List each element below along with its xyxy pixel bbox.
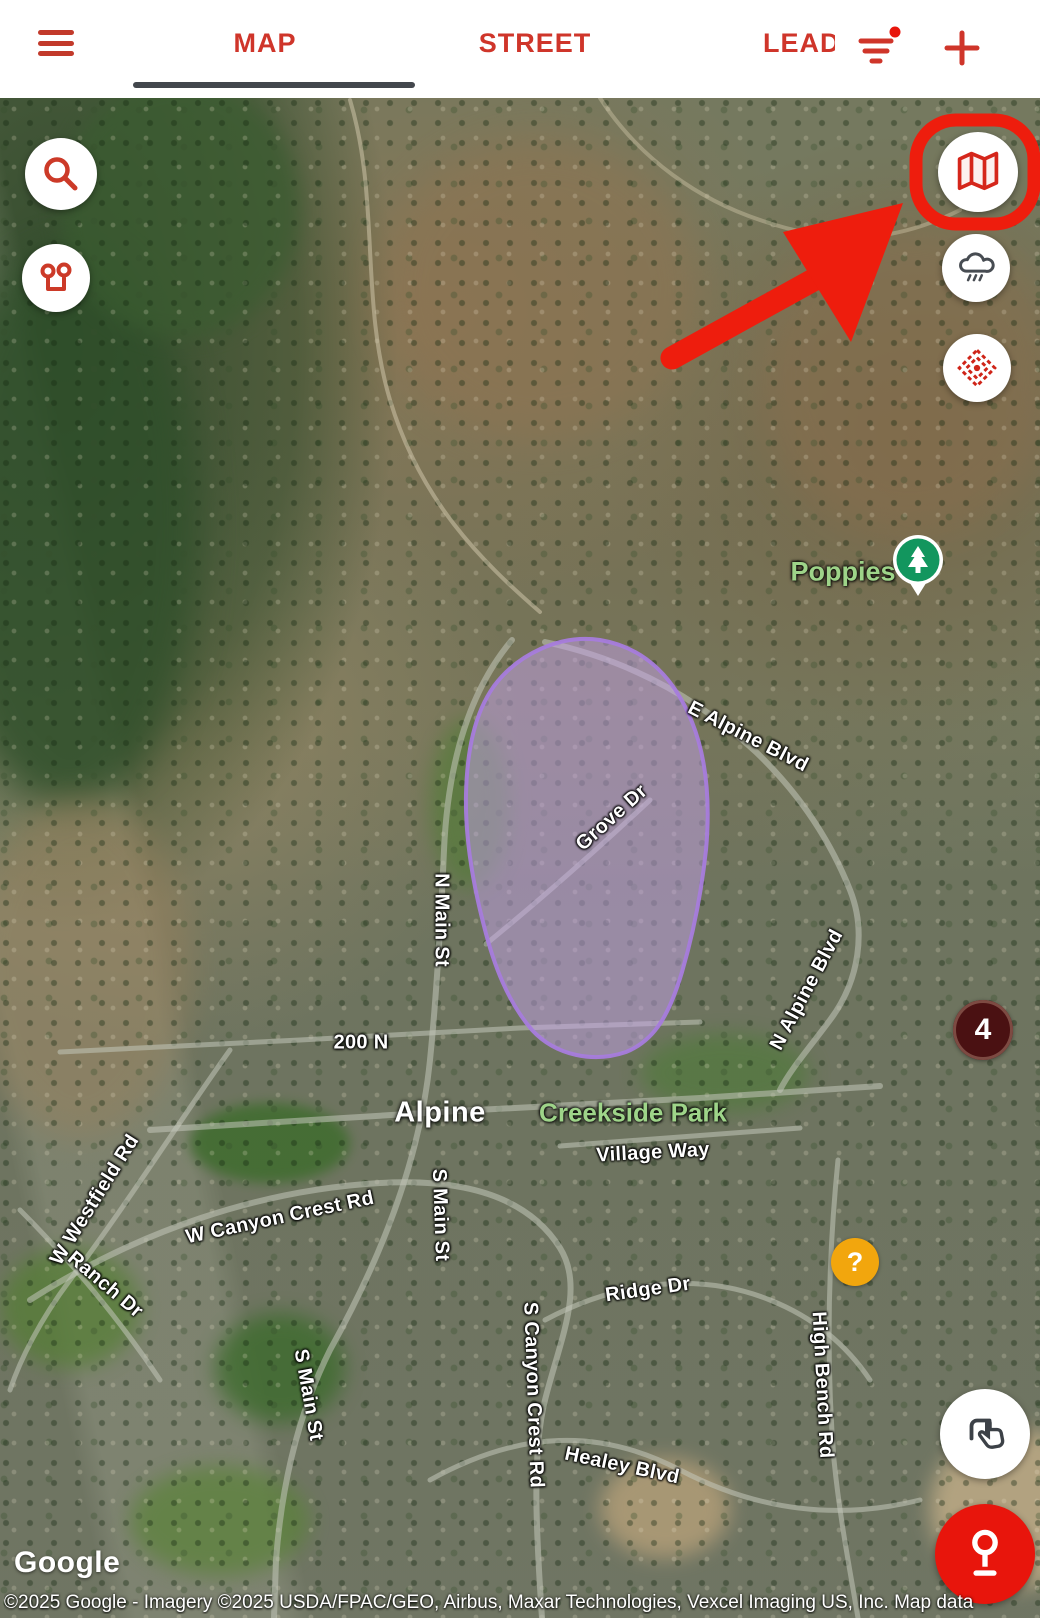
add-button[interactable] — [928, 22, 984, 72]
google-logo: Google — [14, 1546, 120, 1580]
focus-area-button[interactable] — [943, 334, 1011, 402]
plus-icon — [934, 23, 990, 73]
park-label: Poppies — [790, 557, 895, 588]
search-button[interactable] — [25, 138, 97, 210]
top-bar: MAP STREET LEAD — [0, 0, 1040, 98]
city-label: Alpine — [394, 1097, 486, 1130]
menu-button[interactable] — [38, 28, 78, 64]
map-attribution: ©2025 Google - Imagery ©2025 USDA/FPAC/G… — [4, 1592, 1040, 1614]
road-label: N Main St — [430, 873, 453, 967]
weather-button[interactable] — [942, 234, 1010, 302]
help-marker[interactable]: ? — [831, 1238, 879, 1286]
filter-badge-dot — [890, 27, 901, 38]
park-label: Creekside Park — [539, 1098, 727, 1129]
park-pin-marker[interactable] — [892, 534, 944, 598]
app-screen: MAP STREET LEAD — [0, 0, 1040, 1618]
route-pins-icon — [36, 258, 76, 298]
road-label: S Main St — [427, 1168, 453, 1261]
dashed-diamond-icon — [956, 347, 998, 389]
route-button[interactable] — [22, 244, 90, 312]
map-canvas[interactable]: E Alpine Blvd Grove Dr N Main St 200 N V… — [0, 98, 1040, 1618]
filter-sort-icon — [851, 23, 907, 73]
cluster-marker[interactable]: 4 — [953, 1000, 1013, 1060]
map-vector-layer — [0, 98, 1040, 1618]
pin-icon — [959, 1526, 1011, 1582]
active-tab-underline — [133, 82, 415, 88]
tab-map[interactable]: MAP — [200, 28, 330, 59]
filter-button[interactable] — [845, 22, 901, 72]
rain-cloud-icon — [955, 247, 997, 289]
search-icon — [40, 153, 82, 195]
draw-select-button[interactable] — [940, 1389, 1030, 1479]
hamburger-icon — [38, 30, 78, 56]
map-layers-icon — [952, 146, 1004, 198]
tab-lead[interactable]: LEAD — [763, 28, 835, 59]
tap-draw-icon — [958, 1407, 1012, 1461]
drop-pin-fab[interactable] — [935, 1504, 1035, 1604]
map-layers-button[interactable] — [938, 132, 1018, 212]
tree-icon — [892, 534, 944, 598]
road-label: 200 N — [334, 1032, 389, 1055]
tab-street[interactable]: STREET — [455, 28, 615, 59]
